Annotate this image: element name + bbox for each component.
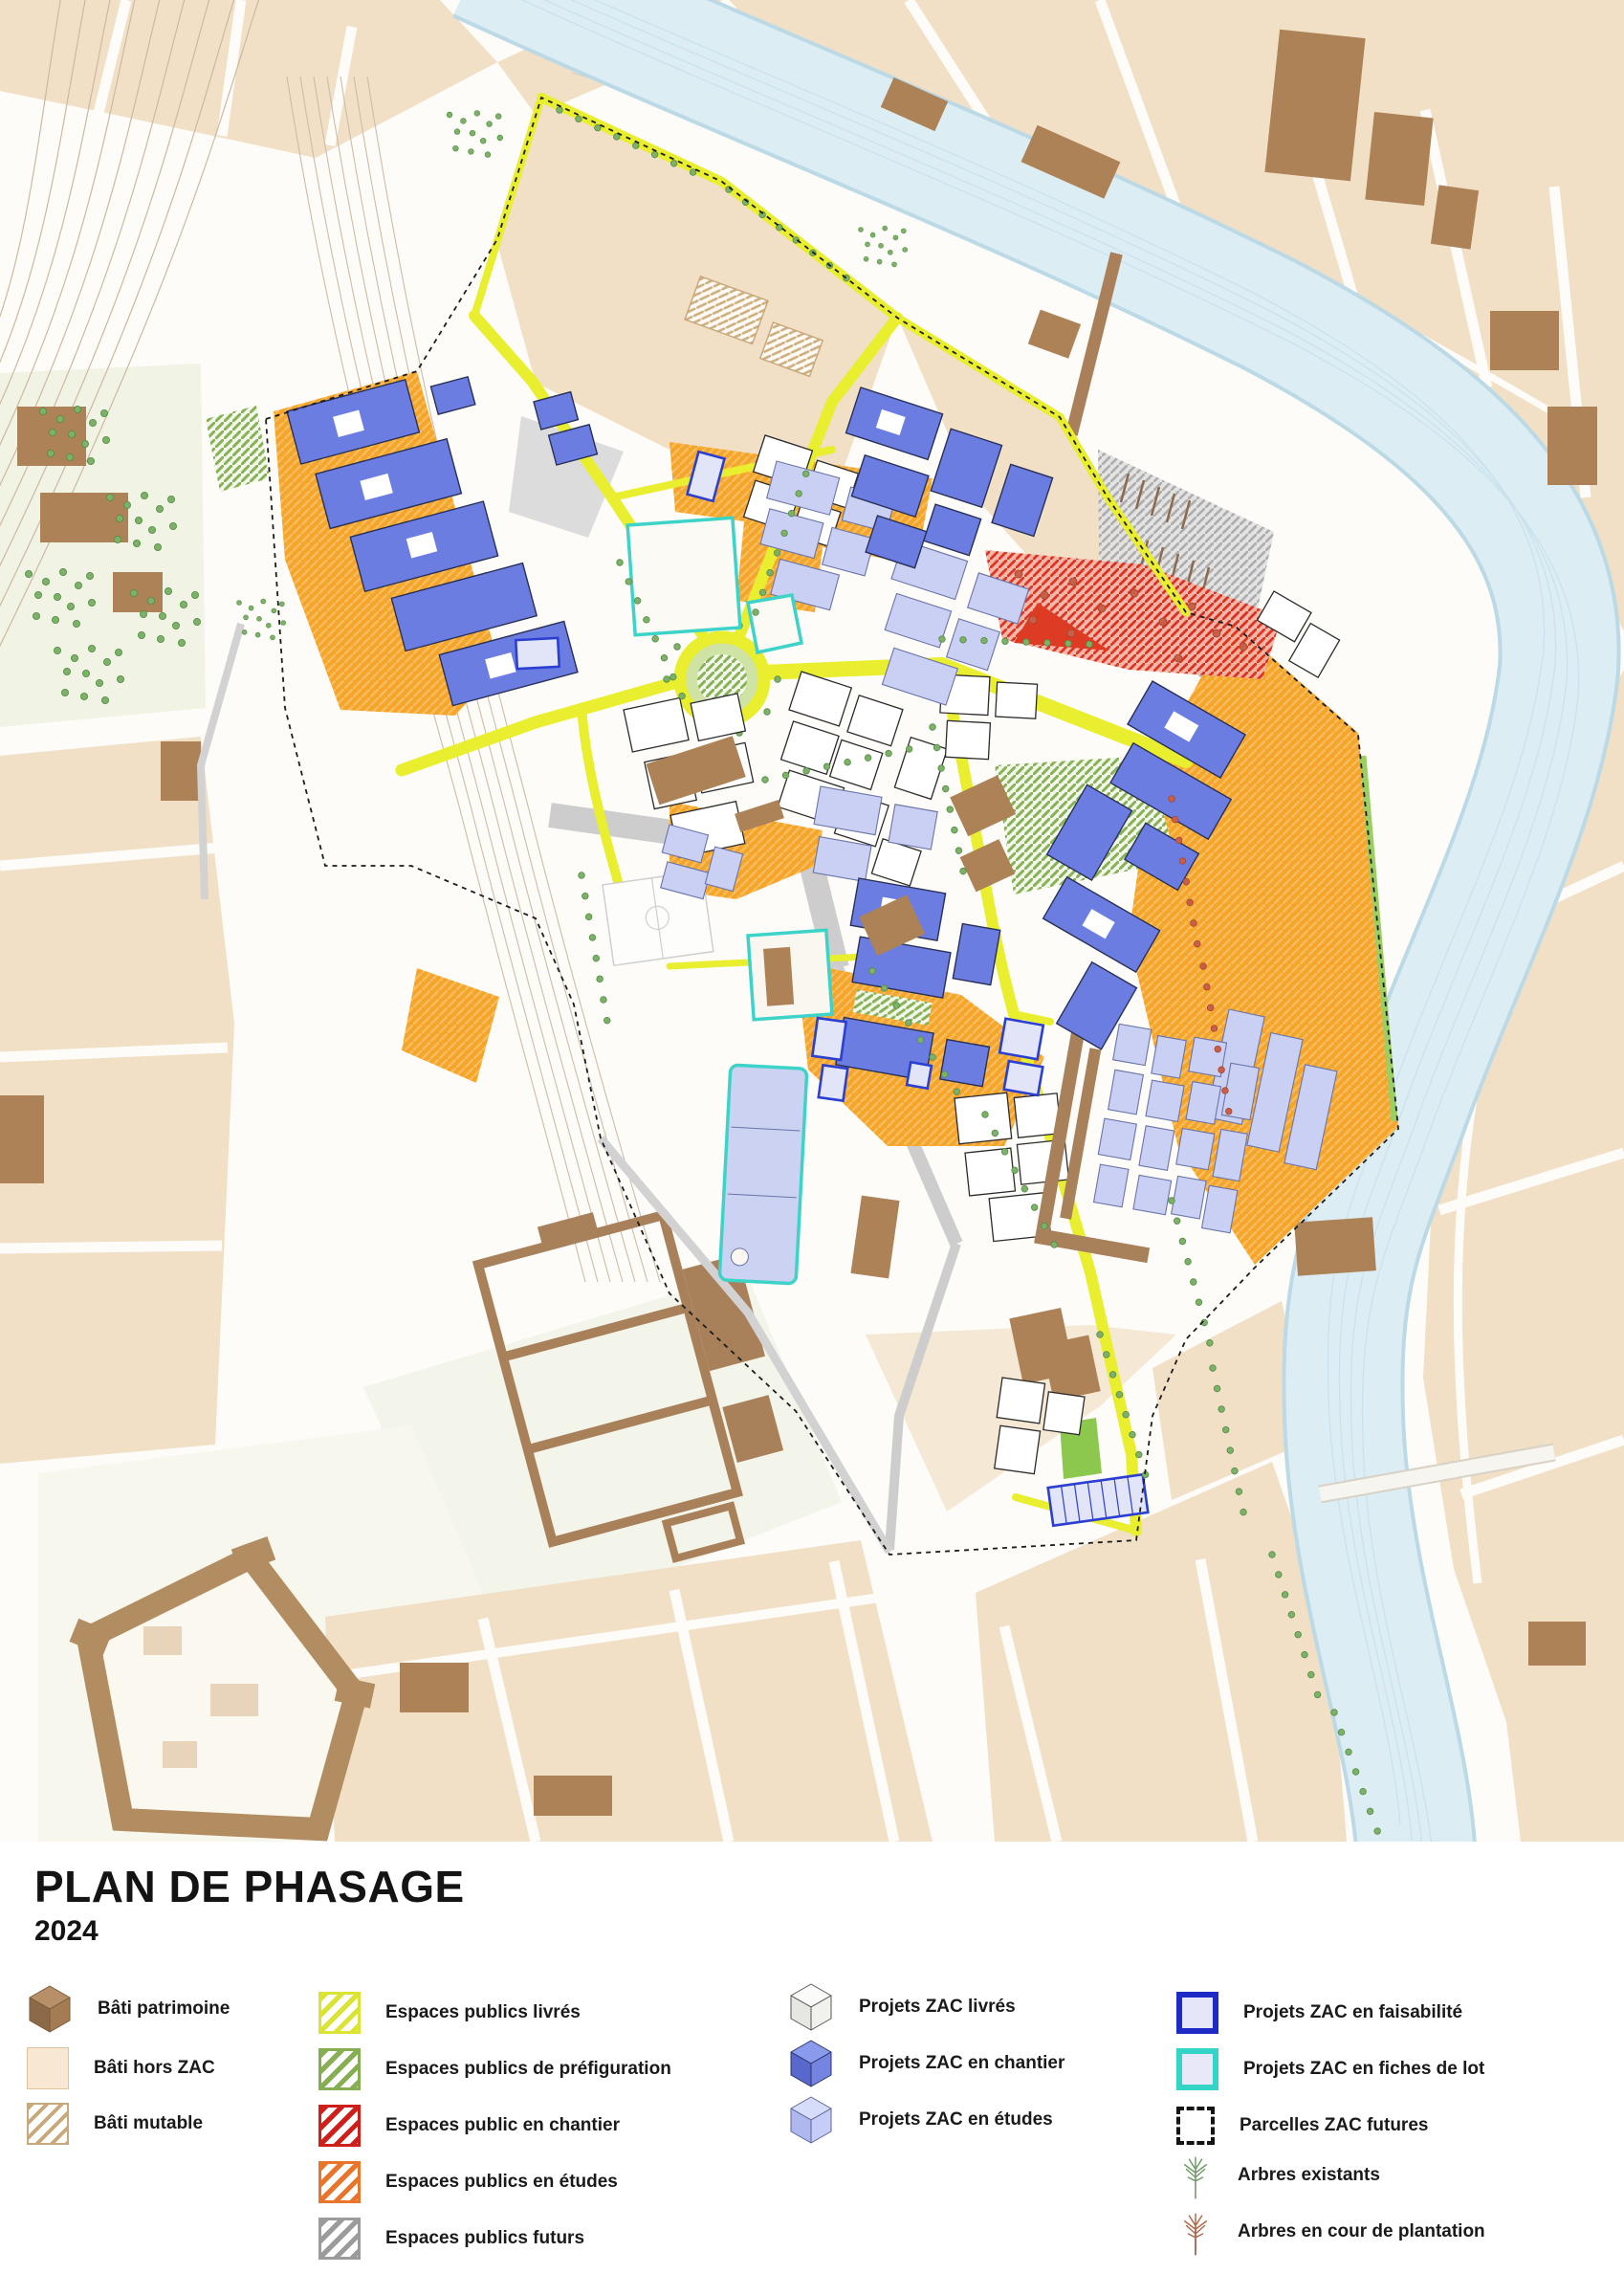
page-title: PLAN DE PHASAGE: [34, 1864, 465, 1910]
gray-hatch-icon: [318, 2218, 361, 2260]
green-hatch-icon: [318, 2048, 361, 2090]
legend-item-espaces-chantier: Espaces public en chantier: [318, 2101, 620, 2151]
legend-label: Projets ZAC en faisabilité: [1243, 2002, 1462, 2023]
cube-brown-icon: [27, 1984, 73, 2034]
legend-label: Projets ZAC en fiches de lot: [1243, 2059, 1484, 2080]
legend-item-arbres-existants: Arbres existants: [1178, 2151, 1380, 2200]
legend-item-espaces-futurs: Espaces publics futurs: [318, 2214, 584, 2263]
yellow-hatch-icon: [318, 1992, 361, 2034]
legend-item-arbres-plantation: Arbres en cour de plantation: [1178, 2207, 1485, 2257]
legend-label: Bâti mutable: [94, 2113, 203, 2134]
legend-item-projets-etudes: Projets ZAC en études: [788, 2095, 1053, 2145]
cyan-outline-square-icon: [1176, 2048, 1218, 2090]
tree-green-icon: [1178, 2152, 1213, 2199]
legend-item-bati-mutable: Bâti mutable: [27, 2099, 203, 2149]
legend-label: Projets ZAC livrés: [859, 1997, 1016, 2018]
legend-label: Espaces public en chantier: [385, 2115, 620, 2136]
legend-label: Projets ZAC en études: [859, 2109, 1053, 2130]
legend-item-parcelles-futures: Parcelles ZAC futures: [1176, 2101, 1428, 2151]
dashed-square-icon: [1176, 2107, 1215, 2145]
legend-label: Arbres existants: [1238, 2165, 1380, 2186]
page-year: 2024: [34, 1915, 465, 1948]
navy-outline-square-icon: [1176, 1992, 1218, 2034]
map-graphic: [0, 0, 1624, 1842]
map-area: [0, 0, 1624, 1842]
legend-item-espaces-livres: Espaces publics livrés: [318, 1988, 581, 2038]
legend-label: Espaces publics de préfiguration: [385, 2059, 671, 2080]
orange-hatch-icon: [318, 2161, 361, 2203]
legend-label: Parcelles ZAC futures: [1240, 2115, 1428, 2136]
legend-label: Projets ZAC en chantier: [859, 2053, 1064, 2074]
beige-square-icon: [27, 2047, 69, 2089]
legend-item-fiches-de-lot: Projets ZAC en fiches de lot: [1176, 2044, 1484, 2094]
title-block: PLAN DE PHASAGE 2024: [34, 1864, 465, 1948]
legend-label: Espaces publics futurs: [385, 2228, 584, 2249]
legend-item-projets-chantier: Projets ZAC en chantier: [788, 2039, 1064, 2088]
legend-item-espaces-etudes: Espaces publics en études: [318, 2157, 618, 2207]
plan-de-phasage-sheet: PLAN DE PHASAGE 2024 Bâti patrimoine Bât…: [0, 0, 1624, 2296]
legend-item-projets-livres: Projets ZAC livrés: [788, 1982, 1016, 2032]
tree-red-icon: [1178, 2208, 1213, 2256]
legend-label: Espaces publics en études: [385, 2172, 618, 2193]
legend-item-bati-hors-zac: Bâti hors ZAC: [27, 2043, 215, 2093]
legend-label: Arbres en cour de plantation: [1238, 2221, 1485, 2242]
cube-blue-icon: [788, 2039, 834, 2088]
cube-periwinkle-icon: [788, 2095, 834, 2145]
legend-label: Espaces publics livrés: [385, 2002, 581, 2023]
red-hatch-icon: [318, 2105, 361, 2147]
legend-label: Bâti hors ZAC: [94, 2058, 215, 2079]
legend-item-espaces-prefiguration: Espaces publics de préfiguration: [318, 2044, 671, 2094]
tan-hatch-icon: [27, 2103, 69, 2145]
legend-item-faisabilite: Projets ZAC en faisabilité: [1176, 1988, 1462, 2038]
legend-item-bati-patrimoine: Bâti patrimoine: [27, 1984, 230, 2034]
legend-label: Bâti patrimoine: [98, 1998, 230, 2020]
cube-white-icon: [788, 1982, 834, 2032]
